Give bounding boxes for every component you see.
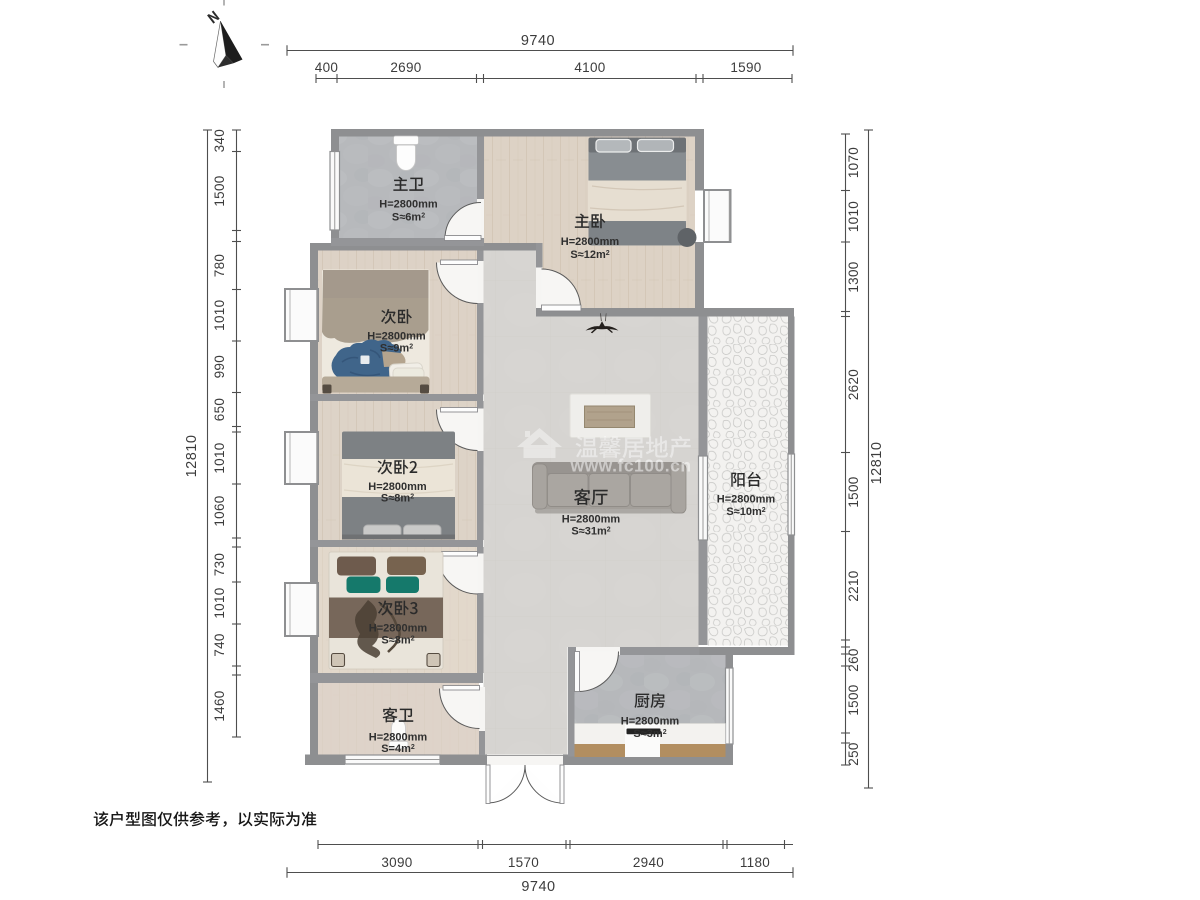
svg-text:H=2800mm: H=2800mm <box>717 494 776 506</box>
svg-text:S≈31m2: S≈31m2 <box>571 526 610 538</box>
svg-text:2210: 2210 <box>846 570 861 601</box>
svg-text:1010: 1010 <box>212 587 227 618</box>
svg-text:4100: 4100 <box>574 60 605 75</box>
svg-text:1500: 1500 <box>846 684 861 715</box>
svg-text:9740: 9740 <box>521 879 555 895</box>
svg-text:3090: 3090 <box>381 855 412 870</box>
svg-text:www.fc100.cn: www.fc100.cn <box>569 456 691 476</box>
svg-text:H=2800mm: H=2800mm <box>562 514 621 526</box>
svg-text:1300: 1300 <box>846 261 861 292</box>
svg-text:1010: 1010 <box>846 201 861 232</box>
svg-text:S≈8m2: S≈8m2 <box>381 493 414 505</box>
svg-text:2690: 2690 <box>390 60 421 75</box>
svg-text:H=2800mm: H=2800mm <box>369 732 428 744</box>
svg-text:740: 740 <box>212 633 227 656</box>
svg-text:S≈10m2: S≈10m2 <box>726 506 765 518</box>
svg-text:1010: 1010 <box>212 300 227 331</box>
svg-text:1500: 1500 <box>846 476 861 507</box>
svg-text:2620: 2620 <box>846 369 861 400</box>
svg-text:1460: 1460 <box>212 690 227 721</box>
svg-text:1180: 1180 <box>740 855 770 870</box>
svg-text:S≈12m2: S≈12m2 <box>570 249 609 261</box>
svg-text:12810: 12810 <box>869 442 885 485</box>
svg-text:260: 260 <box>846 648 861 671</box>
svg-text:650: 650 <box>212 398 227 421</box>
svg-text:250: 250 <box>846 742 861 765</box>
svg-text:2940: 2940 <box>633 855 664 870</box>
svg-text:1060: 1060 <box>212 495 227 526</box>
svg-text:1070: 1070 <box>846 147 861 178</box>
svg-text:1570: 1570 <box>508 855 539 870</box>
svg-text:H=2800mm: H=2800mm <box>369 623 428 635</box>
svg-text:730: 730 <box>212 553 227 576</box>
svg-text:12810: 12810 <box>184 435 200 478</box>
svg-text:S≈9m2: S≈9m2 <box>380 343 413 355</box>
svg-text:H=2800mm: H=2800mm <box>621 716 680 728</box>
svg-text:H=2800mm: H=2800mm <box>367 331 426 343</box>
svg-text:S=4m2: S=4m2 <box>381 743 415 755</box>
svg-text:S≈6m2: S≈6m2 <box>392 212 425 224</box>
svg-text:H=2800mm: H=2800mm <box>561 236 620 248</box>
svg-text:1500: 1500 <box>212 175 227 206</box>
svg-text:780: 780 <box>212 254 227 277</box>
svg-text:9740: 9740 <box>521 33 555 49</box>
svg-text:1010: 1010 <box>212 442 227 473</box>
svg-text:S≈8m2: S≈8m2 <box>381 635 414 647</box>
svg-text:340: 340 <box>212 129 227 152</box>
svg-text:1590: 1590 <box>730 60 761 75</box>
svg-text:400: 400 <box>315 60 338 75</box>
svg-text:H=2800mm: H=2800mm <box>368 481 427 493</box>
svg-text:990: 990 <box>212 355 227 378</box>
svg-text:S≈3m2: S≈3m2 <box>633 728 666 740</box>
svg-text:H=2800mm: H=2800mm <box>379 199 438 211</box>
